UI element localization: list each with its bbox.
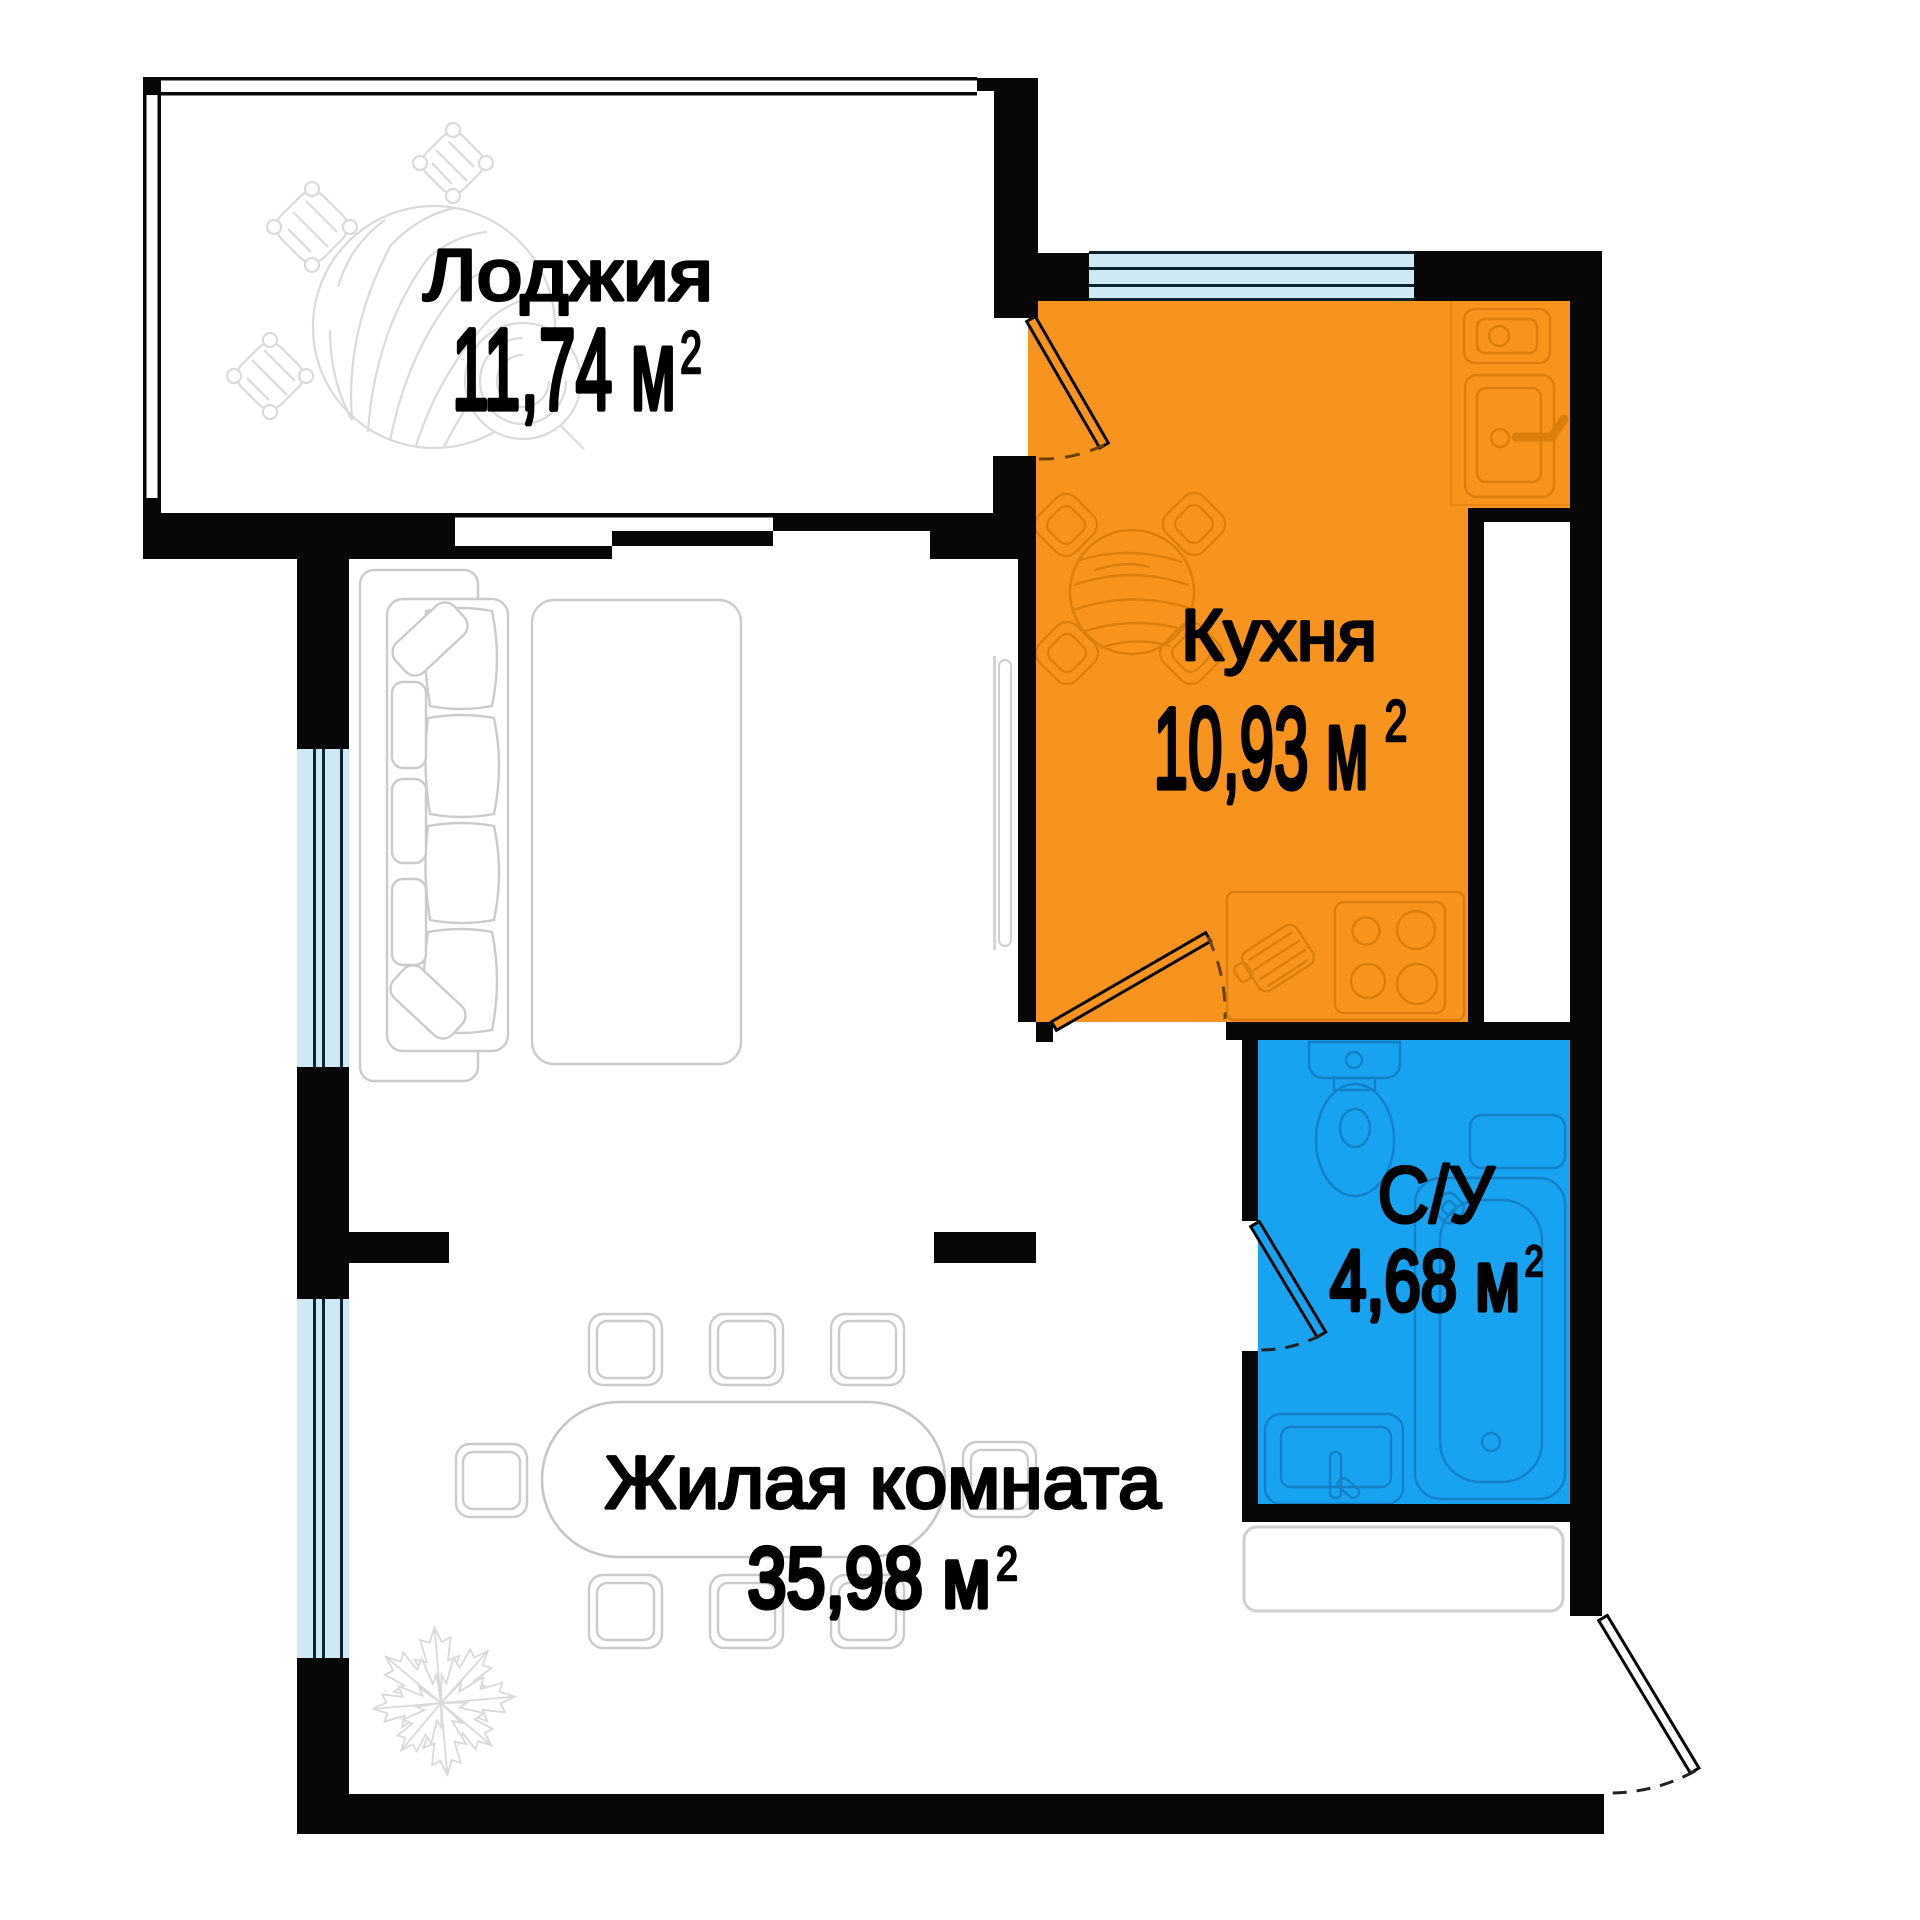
svg-text:Жилая комната: Жилая комната xyxy=(605,1441,1162,1524)
svg-text:4,68 м: 4,68 м xyxy=(1330,1234,1520,1329)
svg-text:2: 2 xyxy=(1525,1237,1544,1286)
svg-text:Кухня: Кухня xyxy=(1181,596,1377,676)
svg-text:11,74 м: 11,74 м xyxy=(452,306,676,434)
svg-text:10,93 м: 10,93 м xyxy=(1154,685,1369,813)
svg-text:2: 2 xyxy=(680,319,702,386)
svg-text:2: 2 xyxy=(996,1538,1018,1591)
svg-text:35,98 м: 35,98 м xyxy=(748,1531,991,1626)
svg-text:Лоджия: Лоджия xyxy=(423,236,713,316)
svg-text:С/У: С/У xyxy=(1378,1150,1496,1239)
svg-text:2: 2 xyxy=(1385,689,1408,754)
